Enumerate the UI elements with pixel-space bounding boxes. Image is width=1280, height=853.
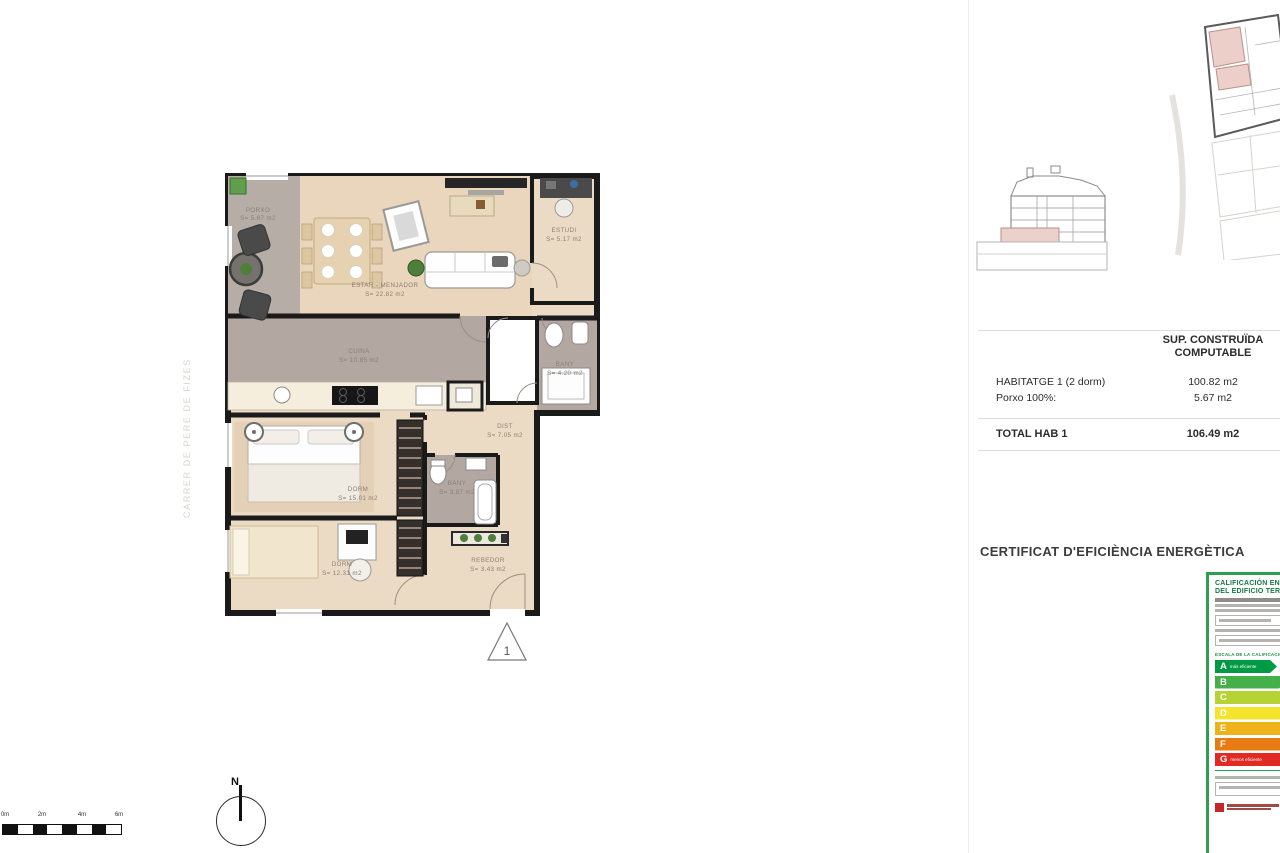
energy-scale: Amás eficienteBCDEFGmenos eficiente — [1215, 660, 1280, 766]
room-label: ESTAR - MENJADOR — [352, 282, 419, 289]
energy-rating-d: D — [1215, 707, 1280, 720]
scale-label: 6m — [115, 812, 123, 818]
table-row-value: 5.67 m2 — [1148, 392, 1278, 404]
scale-bar: 0m 2m 4m 6m — [2, 812, 122, 837]
north-needle — [239, 785, 243, 821]
energy-label-title-line1: CALIFICACIÓN ENERGÉTICA — [1215, 580, 1280, 588]
scale-bar-segments — [2, 824, 122, 835]
form-field — [1215, 635, 1280, 646]
scale-label: 2m — [38, 812, 46, 818]
scale-label: 4m — [78, 812, 86, 818]
scale-labels: 0m 2m 4m 6m — [2, 812, 122, 821]
room-label: ESTUDI — [551, 227, 576, 234]
room-area: S= 10.85 m2 — [339, 357, 379, 364]
wardrobes — [397, 420, 423, 576]
table-rule-top — [978, 330, 1280, 331]
energy-rating-c: C — [1215, 691, 1280, 704]
table-total-value: 106.49 m2 — [1148, 428, 1278, 440]
room-label: DORM — [348, 486, 369, 493]
room-area: S= 7.05 m2 — [487, 432, 523, 439]
table-header-line1: SUP. CONSTRUÏDA — [1148, 334, 1278, 347]
site-plan — [1160, 5, 1280, 260]
table-row-label: Porxo 100%: — [996, 392, 1056, 404]
table-row-label: HABITATGE 1 (2 dorm) — [996, 376, 1105, 388]
north-arrow — [216, 796, 266, 846]
unit-number: 1 — [504, 644, 511, 658]
form-field — [1215, 615, 1280, 626]
table-total-label: TOTAL HAB 1 — [996, 428, 1068, 440]
bedroom1-furniture — [245, 423, 363, 502]
room-area: S= 15.01 m2 — [338, 495, 378, 502]
room-area: S= 3.43 m2 — [470, 566, 506, 573]
room-label: CUINA — [348, 348, 370, 355]
room-area: S= 22.82 m2 — [365, 291, 405, 298]
room-area: S= 5.67 m2 — [240, 215, 276, 222]
certificate-heading: CERTIFICAT D'EFICIÈNCIA ENERGÈTICA — [980, 544, 1245, 559]
energy-label: CALIFICACIÓN ENERGÉTICA DEL EDIFICIO TER… — [1206, 572, 1280, 853]
room-area: S= 12.31 m2 — [322, 570, 362, 577]
floorplan-sheet: CARRER DE PERE DE FIZES — [0, 0, 1280, 853]
energy-divider — [1215, 770, 1280, 771]
room-area: S= 5.17 m2 — [546, 236, 582, 243]
floor-plan: PORXO S= 5.67 m2 ESTAR - MENJADOR S= 22.… — [220, 168, 604, 668]
building-section — [975, 148, 1115, 278]
room-label: REBEDOR — [471, 557, 505, 564]
form-field — [1215, 782, 1280, 796]
energy-rating-a: Amás eficiente — [1215, 660, 1280, 673]
highlighted-unit-section — [1001, 228, 1059, 242]
energy-rating-g: Gmenos eficiente — [1215, 753, 1280, 766]
logo-icon — [1215, 803, 1224, 812]
highlighted-unit — [1209, 27, 1245, 67]
room-area: S= 3.87 m2 — [439, 489, 475, 496]
unit-marker: 1 — [488, 623, 526, 660]
room-area: S= 4.20 m2 — [547, 370, 583, 377]
patio-notch — [488, 318, 537, 403]
table-rule-bottom — [978, 450, 1280, 451]
room-label: BANY — [448, 480, 466, 487]
energy-label-form — [1215, 598, 1280, 646]
room-label: BANY — [556, 361, 574, 368]
energy-label-title-line2: DEL EDIFICIO TERMINADO — [1215, 588, 1280, 596]
energy-rating-b: B — [1215, 676, 1280, 689]
table-header: SUP. CONSTRUÏDA COMPUTABLE — [1148, 334, 1278, 360]
energy-scale-heading: ESCALA DE LA CALIFICACIÓN ENERGÉTICA — [1215, 652, 1280, 657]
energy-rating-e: E — [1215, 722, 1280, 735]
room-label: DORM — [332, 561, 353, 568]
room-label: DIST — [497, 423, 513, 430]
energy-rating-f: F — [1215, 738, 1280, 751]
table-rule-mid — [978, 418, 1280, 419]
table-header-line2: COMPUTABLE — [1148, 347, 1278, 360]
street-label: CARRER DE PERE DE FIZES — [182, 298, 192, 518]
agency-logo — [1215, 803, 1280, 812]
table-row-value: 100.82 m2 — [1148, 376, 1278, 388]
room-label: PORXO — [246, 207, 270, 214]
scale-label: 0m — [1, 812, 9, 818]
